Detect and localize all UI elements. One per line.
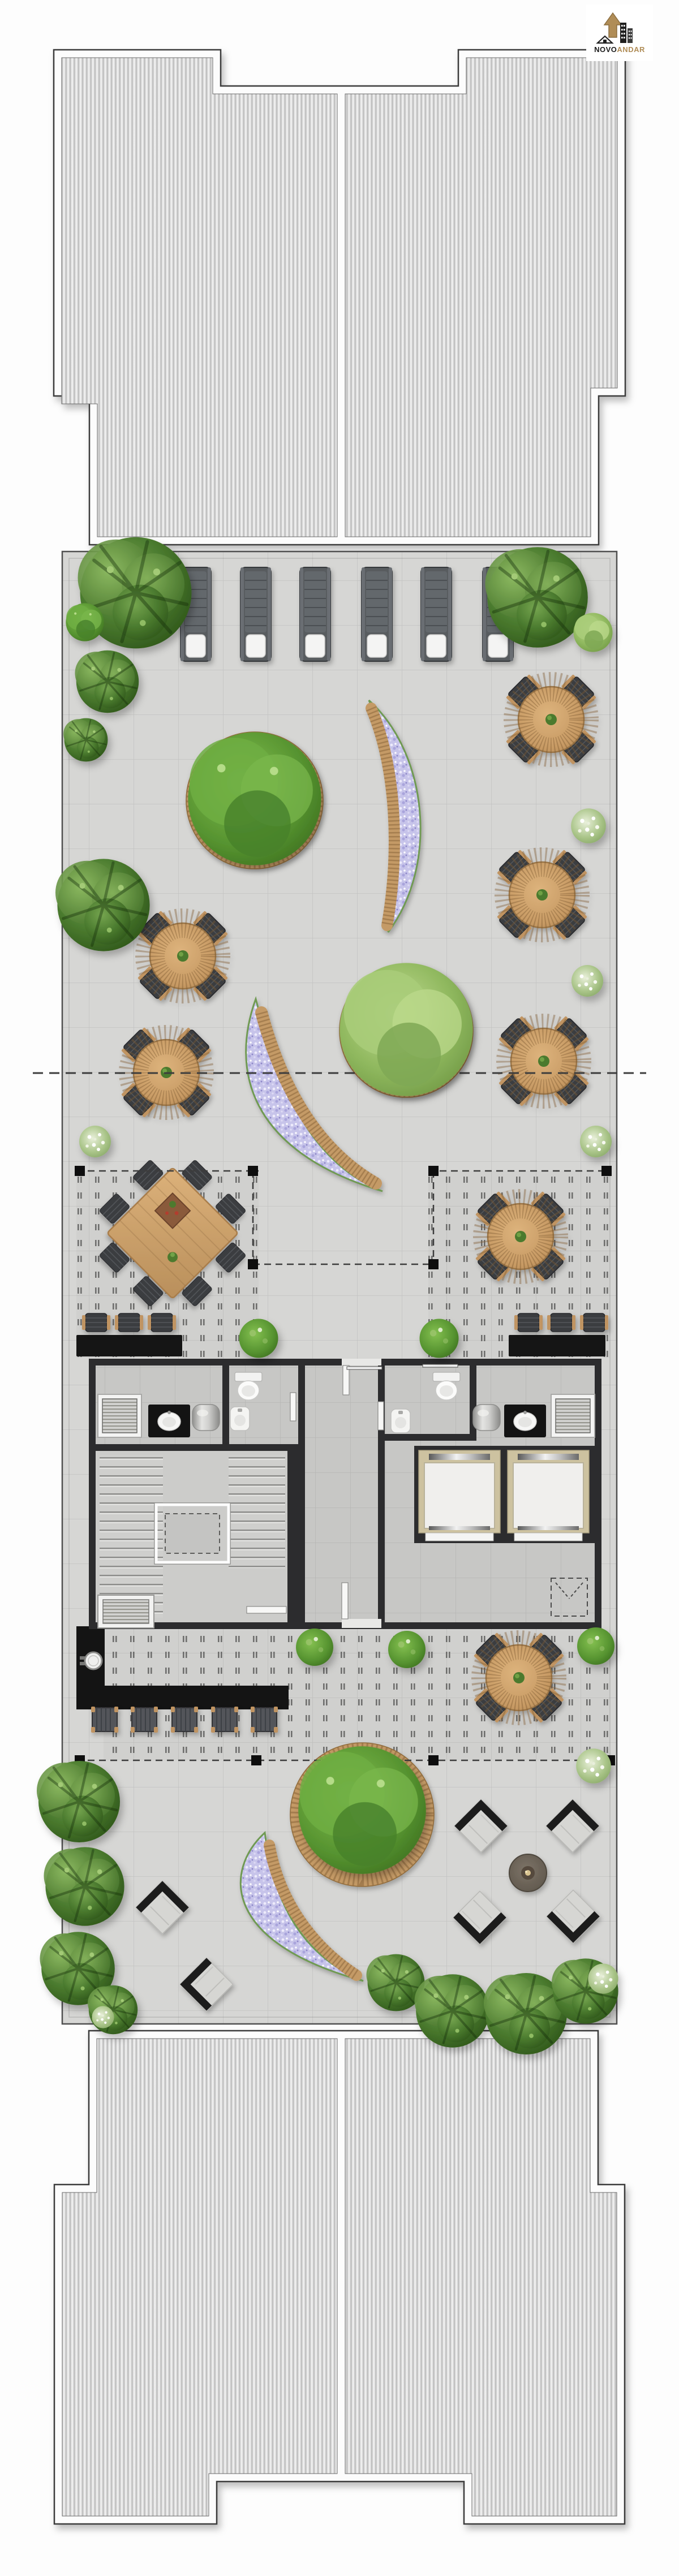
- pergola-post: [428, 1166, 439, 1176]
- bar-chair: [148, 1313, 176, 1332]
- flat-sun-lounger: [211, 1707, 238, 1733]
- equipment-unit-left: [98, 1394, 141, 1437]
- tree: [298, 1746, 426, 1874]
- pergola-post: [75, 1166, 85, 1176]
- pergola-post: [251, 1755, 261, 1765]
- tree: [573, 613, 612, 652]
- bottom-metal-roof: [54, 2031, 625, 2524]
- flat-sun-lounger: [251, 1707, 278, 1733]
- flat-sun-lounger: [171, 1707, 198, 1733]
- pergola-post: [428, 1755, 439, 1765]
- bar-chair: [82, 1313, 110, 1332]
- white-flower-bush: [580, 1126, 612, 1157]
- pergola-post: [428, 1259, 439, 1269]
- tree: [188, 732, 321, 865]
- vanity-left: [148, 1405, 190, 1437]
- bar-chair: [115, 1313, 143, 1332]
- vanity-right: [504, 1405, 546, 1437]
- flat-sun-lounger: [131, 1707, 158, 1733]
- flat-sun-lounger: [91, 1707, 118, 1733]
- rooftop-floor-plan: NOVOANDAR: [0, 0, 679, 2576]
- water-heater-left: [192, 1405, 220, 1431]
- water-heater-right: [473, 1405, 500, 1431]
- brand-wordmark: NOVOANDAR: [594, 45, 645, 54]
- pergola-post: [601, 1166, 612, 1176]
- sink-center: [391, 1409, 410, 1433]
- white-flower-bush: [588, 1963, 618, 1993]
- building-core: [89, 1359, 601, 1629]
- sun-lounger: [240, 567, 271, 661]
- green-bush: [577, 1627, 614, 1665]
- tree: [66, 603, 104, 641]
- equipment-unit-right: [551, 1394, 595, 1437]
- brand-text-gold: ANDAR: [617, 45, 645, 54]
- green-bush: [296, 1629, 333, 1666]
- green-bush: [239, 1319, 278, 1358]
- tree: [37, 1761, 120, 1842]
- tree: [44, 1847, 124, 1925]
- pergola-post: [248, 1166, 258, 1176]
- white-flower-bush: [571, 965, 603, 997]
- sun-lounger: [362, 567, 392, 661]
- fire-pit: [509, 1854, 547, 1892]
- elevator-bank: [414, 1446, 595, 1543]
- sun-lounger: [421, 567, 452, 661]
- white-flower-bush: [92, 2006, 114, 2028]
- elevator-2: [508, 1450, 589, 1541]
- sun-lounger: [300, 567, 330, 661]
- white-flower-bush: [576, 1748, 611, 1784]
- sink-left: [230, 1407, 250, 1431]
- green-bush: [388, 1631, 426, 1668]
- bar-chair: [547, 1313, 575, 1332]
- floorplan-page: NOVOANDAR: [0, 0, 679, 2576]
- pergola-post: [248, 1259, 258, 1269]
- elevator-1: [419, 1450, 500, 1541]
- brand-text-black: NOVO: [594, 45, 617, 54]
- white-flower-bush: [571, 808, 606, 843]
- green-bush: [420, 1319, 459, 1358]
- bar-chair: [580, 1313, 608, 1332]
- top-metal-roof: [54, 50, 625, 545]
- service-shaft: [98, 1595, 154, 1628]
- bar-chair: [514, 1313, 543, 1332]
- tree: [339, 963, 472, 1096]
- brand-logo: NOVOANDAR: [586, 5, 653, 61]
- white-flower-bush: [79, 1126, 111, 1157]
